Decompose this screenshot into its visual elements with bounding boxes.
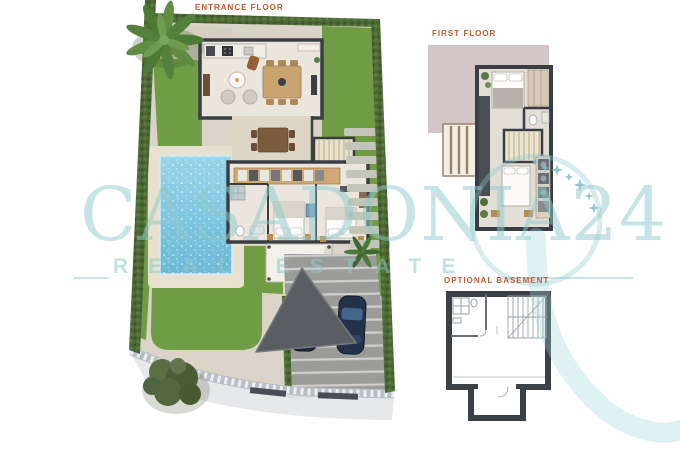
laundry-column [536, 156, 550, 218]
pouf [221, 90, 235, 104]
nightstand [305, 234, 311, 240]
plant [480, 198, 488, 206]
first-floor-plan [428, 45, 551, 229]
pool-sparkle [160, 156, 232, 274]
plant [481, 72, 489, 80]
wardrobe [528, 70, 548, 106]
plant [314, 57, 320, 63]
basement-plan [449, 294, 548, 418]
plant [480, 210, 488, 218]
house-living-block [200, 40, 322, 118]
plant [485, 82, 491, 88]
nightstand [267, 234, 273, 240]
floorplan-canvas: CASADONIA24 REAL ESTATE ENTRANCE FLOOR F… [0, 0, 680, 453]
door-jamb [472, 384, 478, 389]
void-strip [479, 96, 490, 196]
nightstand [491, 210, 500, 217]
lawn-upper-left [153, 58, 202, 148]
nightstand [524, 210, 533, 217]
pouf [243, 90, 257, 104]
shelf [298, 44, 320, 51]
door-jamb [516, 384, 522, 389]
lawn-bottom-left [151, 286, 262, 350]
optional-basement-label: OPTIONAL BASEMENT [444, 276, 549, 285]
tv-unit [311, 75, 317, 95]
site-plan-graphic [0, 0, 680, 453]
pergola [443, 124, 477, 176]
covered-terrace [232, 116, 312, 164]
sideboard [203, 74, 210, 96]
nightstand [320, 236, 326, 242]
first-floor-label: FIRST FLOOR [432, 29, 496, 38]
dresser [306, 204, 315, 217]
dining-set [263, 60, 301, 105]
entrance-floor-label: ENTRANCE FLOOR [195, 3, 284, 12]
outdoor-table [258, 128, 288, 152]
